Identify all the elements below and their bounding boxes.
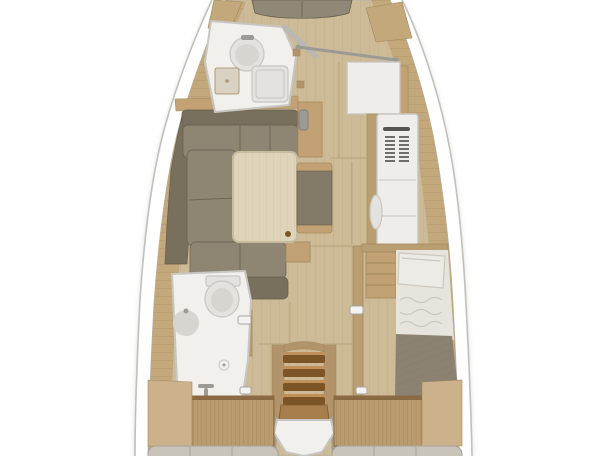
washbasin-icon: [173, 310, 199, 336]
sofa-end-table-bottom: [286, 242, 310, 262]
latch-icon: [356, 387, 367, 394]
ottoman-bench: [297, 163, 332, 233]
floorplan-canvas: [0, 0, 608, 456]
stern-locker-right: [422, 380, 462, 446]
stern-cushion-left: [148, 446, 278, 456]
aft-head-door-handle: [238, 316, 251, 324]
tall-locker: [367, 114, 418, 254]
locker-handle: [383, 127, 410, 131]
boat-floorplan: [0, 0, 608, 456]
aft-cabin-wall: [353, 246, 363, 396]
mast-post: [299, 110, 308, 130]
saloon-table: [233, 152, 297, 242]
locker-handle-oval: [370, 195, 382, 229]
shower-tray: [252, 66, 288, 102]
companionway-stairs: [262, 342, 346, 456]
berth-panel-right: [334, 396, 422, 446]
faucet-icon: [241, 35, 254, 40]
stern-cushion-right: [332, 446, 462, 456]
latch-icon: [240, 387, 251, 394]
sofa-back-top: [182, 110, 298, 127]
aft-cabin-door-handle: [350, 306, 363, 314]
door-jamb: [297, 81, 304, 88]
door-jamb: [293, 49, 300, 56]
stern-locker-left: [148, 380, 192, 446]
berth-panel-left: [192, 396, 274, 446]
faucet-icon: [184, 309, 189, 314]
storage-module: [347, 62, 408, 116]
bedside-steps: [366, 252, 396, 298]
